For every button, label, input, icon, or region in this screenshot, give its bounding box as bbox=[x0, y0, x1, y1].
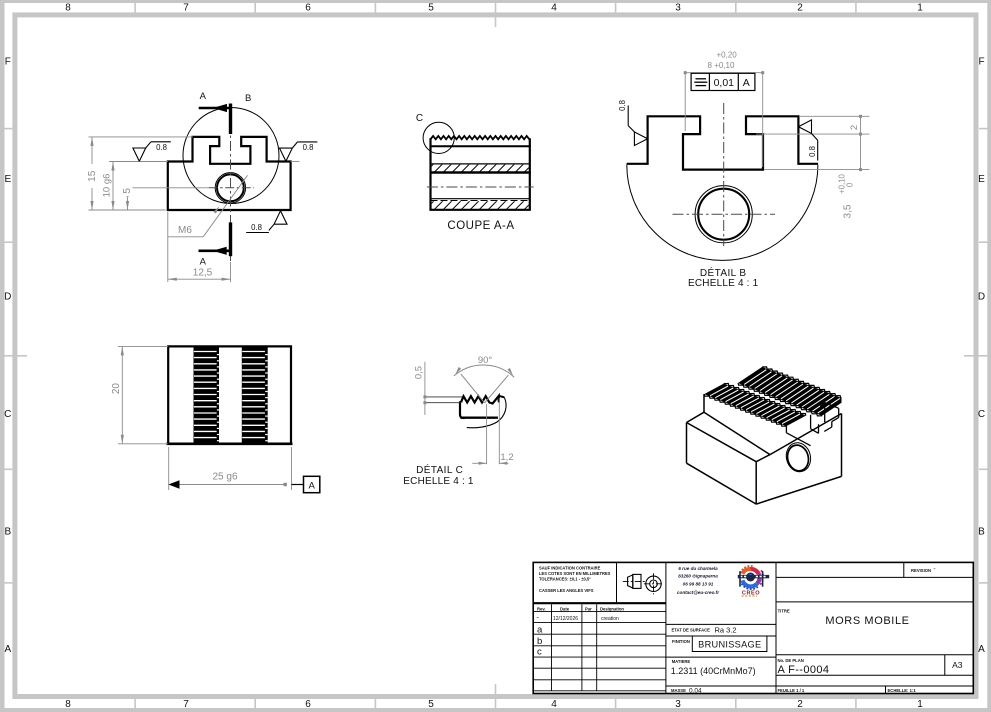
svg-text:A: A bbox=[4, 644, 11, 655]
svg-text:5: 5 bbox=[428, 3, 434, 14]
svg-text:6 rue du charmela: 6 rue du charmela bbox=[678, 566, 718, 571]
svg-text:-: - bbox=[934, 567, 936, 573]
svg-text:TOLERANCES: ±0,1 - ±0,5°: TOLERANCES: ±0,1 - ±0,5° bbox=[539, 577, 591, 582]
svg-text:15: 15 bbox=[87, 170, 98, 182]
svg-text:C: C bbox=[416, 113, 423, 124]
svg-text:COUPE A-A: COUPE A-A bbox=[447, 220, 514, 232]
svg-text:B: B bbox=[4, 526, 11, 537]
svg-text:A F--0004: A F--0004 bbox=[778, 664, 830, 676]
svg-text:F: F bbox=[978, 56, 984, 67]
svg-text:No. DE PLAN: No. DE PLAN bbox=[778, 658, 804, 663]
svg-text:Ra 3.2: Ra 3.2 bbox=[715, 625, 737, 634]
svg-text:3,5: 3,5 bbox=[842, 204, 853, 218]
svg-text:12/12/2026: 12/12/2026 bbox=[553, 616, 578, 622]
svg-text:Par: Par bbox=[585, 606, 592, 611]
svg-text:7: 7 bbox=[183, 699, 189, 710]
svg-text:5: 5 bbox=[428, 699, 434, 710]
svg-text:M6: M6 bbox=[178, 225, 192, 236]
svg-text:a: a bbox=[537, 625, 543, 636]
svg-text:CREO: CREO bbox=[742, 590, 760, 596]
svg-text:2: 2 bbox=[849, 125, 860, 130]
svg-text:4: 4 bbox=[551, 3, 557, 14]
svg-text:A: A bbox=[743, 77, 750, 89]
svg-text:D: D bbox=[4, 291, 11, 302]
svg-text:DÉTAIL C: DÉTAIL C bbox=[416, 463, 463, 476]
svg-text:8: 8 bbox=[65, 3, 71, 14]
svg-text:A: A bbox=[200, 257, 207, 268]
svg-text:0,01: 0,01 bbox=[714, 77, 735, 89]
svg-text:F: F bbox=[5, 56, 11, 67]
svg-text:0.8: 0.8 bbox=[251, 223, 262, 232]
svg-text:5: 5 bbox=[122, 188, 133, 194]
svg-text:TITRE: TITRE bbox=[778, 609, 790, 614]
svg-text:06 99 88 13 91: 06 99 88 13 91 bbox=[683, 581, 714, 586]
svg-text:MORS MOBILE: MORS MOBILE bbox=[825, 615, 909, 627]
svg-text:B: B bbox=[245, 93, 251, 104]
svg-text:0.8: 0.8 bbox=[303, 143, 314, 152]
svg-text:A: A bbox=[978, 644, 985, 655]
svg-text:C: C bbox=[4, 409, 11, 420]
svg-text:c: c bbox=[537, 647, 542, 658]
svg-text:C: C bbox=[978, 409, 985, 420]
svg-text:CASSER LES ANGLES VIFS: CASSER LES ANGLES VIFS bbox=[539, 588, 594, 593]
svg-text:6: 6 bbox=[305, 699, 311, 710]
svg-text:1: 1 bbox=[917, 699, 923, 710]
svg-text:creation: creation bbox=[601, 616, 619, 622]
svg-text:B: B bbox=[978, 526, 985, 537]
svg-text:ETAT DE SURFACE: ETAT DE SURFACE bbox=[672, 627, 711, 632]
svg-text:FINITION: FINITION bbox=[672, 639, 690, 644]
svg-text:2: 2 bbox=[797, 699, 803, 710]
svg-text:Designation: Designation bbox=[600, 606, 624, 611]
svg-text:b: b bbox=[537, 636, 542, 647]
svg-text:3: 3 bbox=[675, 3, 681, 14]
svg-text:2: 2 bbox=[797, 3, 803, 14]
svg-text:0.04: 0.04 bbox=[689, 688, 702, 695]
svg-text:7: 7 bbox=[183, 3, 189, 14]
svg-text:A: A bbox=[309, 481, 316, 492]
svg-text:12,5: 12,5 bbox=[193, 268, 213, 279]
svg-text:E: E bbox=[978, 174, 985, 185]
svg-text:contact@eu-creo.fr: contact@eu-creo.fr bbox=[677, 590, 719, 595]
svg-text:10 g6: 10 g6 bbox=[102, 174, 113, 198]
svg-text:8: 8 bbox=[65, 699, 71, 710]
svg-text:0: 0 bbox=[846, 182, 855, 187]
svg-text:+0,20: +0,20 bbox=[716, 51, 737, 60]
svg-text:25 g6: 25 g6 bbox=[212, 472, 237, 483]
svg-text:0.8: 0.8 bbox=[156, 143, 167, 152]
svg-text:FEUILLE 1 / 1: FEUILLE 1 / 1 bbox=[778, 688, 805, 693]
svg-text:BRUNISSAGE: BRUNISSAGE bbox=[698, 639, 761, 649]
svg-text:ECHELLE 4 : 1: ECHELLE 4 : 1 bbox=[403, 476, 474, 487]
svg-text:D: D bbox=[978, 291, 985, 302]
svg-text:ECHELLE 4 : 1: ECHELLE 4 : 1 bbox=[688, 278, 759, 289]
svg-text:E: E bbox=[4, 174, 11, 185]
svg-text:0.8: 0.8 bbox=[808, 146, 817, 157]
svg-text:REVISION: REVISION bbox=[911, 568, 931, 573]
svg-text:Rev.: Rev. bbox=[537, 606, 546, 611]
svg-text:1,2: 1,2 bbox=[500, 452, 513, 463]
svg-text:LES COTES SONT EN MILLIMETRES: LES COTES SONT EN MILLIMETRES bbox=[539, 571, 611, 576]
svg-text:0,5: 0,5 bbox=[413, 366, 424, 379]
svg-text:63260 Gignaperna: 63260 Gignaperna bbox=[678, 574, 718, 579]
svg-text:3: 3 bbox=[675, 699, 681, 710]
svg-text:1: 1 bbox=[917, 3, 923, 14]
svg-text:4: 4 bbox=[551, 699, 557, 710]
svg-text:A3: A3 bbox=[952, 660, 963, 670]
svg-text:Date: Date bbox=[560, 606, 570, 611]
svg-text:SAUF INDICATION CONTRAIRE: SAUF INDICATION CONTRAIRE bbox=[539, 566, 601, 571]
svg-text:MATIERE: MATIERE bbox=[672, 659, 691, 664]
svg-text:MASSE: MASSE bbox=[671, 688, 686, 693]
svg-text:6: 6 bbox=[305, 3, 311, 14]
svg-text:A: A bbox=[200, 91, 207, 102]
svg-text:90°: 90° bbox=[478, 355, 493, 366]
svg-text:1.2311 (40CrMnMo7): 1.2311 (40CrMnMo7) bbox=[671, 666, 756, 676]
svg-text:ECHELLE: 1:1: ECHELLE: 1:1 bbox=[888, 688, 917, 693]
svg-text:0.8: 0.8 bbox=[618, 100, 627, 111]
svg-text:20: 20 bbox=[111, 383, 122, 395]
svg-text:8 +0,10: 8 +0,10 bbox=[708, 61, 735, 70]
